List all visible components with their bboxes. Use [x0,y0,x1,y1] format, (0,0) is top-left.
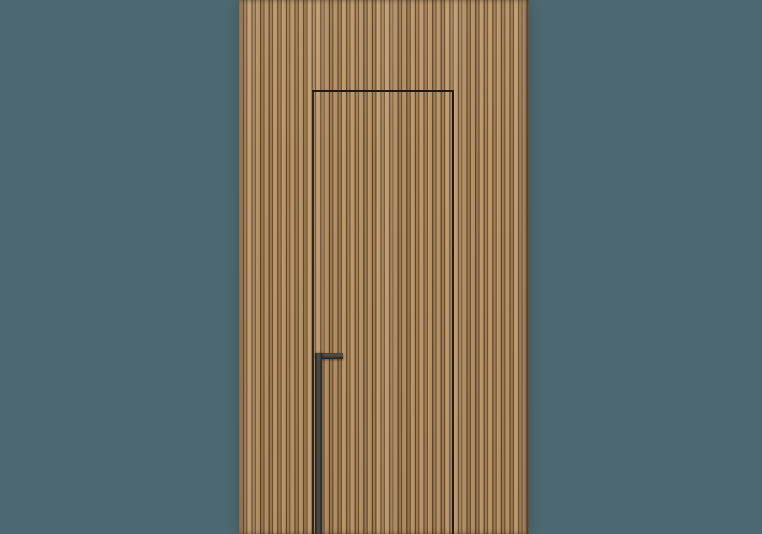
door-gap-left-edge [312,90,314,534]
door-gap-top-edge [312,90,454,92]
door-handle-grip-bar [315,353,322,534]
wood-slat-panel [239,0,529,534]
backdrop [0,0,762,534]
door-gap-right-edge [452,90,454,534]
